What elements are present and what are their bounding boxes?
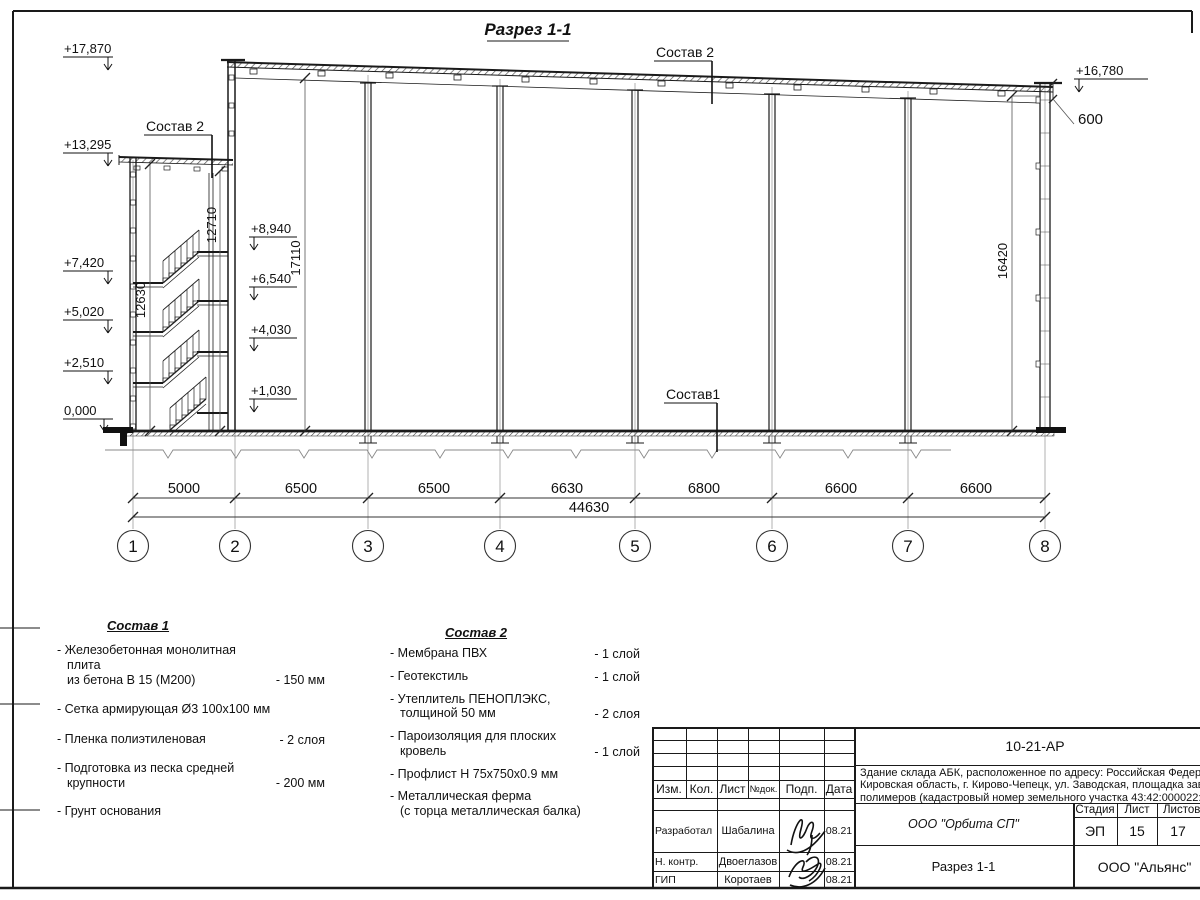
floor-slab <box>103 427 1066 458</box>
tb-sheet-value: 15 <box>1117 817 1157 845</box>
svg-text:+4,030: +4,030 <box>251 322 291 337</box>
note-item: - Утеплитель ПЕНОПЛЭКС, толщиной 50 мм- … <box>390 692 640 722</box>
note-item: - Геотекстиль- 1 слой <box>390 669 640 684</box>
svg-text:6500: 6500 <box>418 481 450 497</box>
tb-org: ООО "Орбита СП" <box>854 803 1073 845</box>
note-sostav1: Состав 1 - Железобетонная монолитная пли… <box>57 618 325 819</box>
drawing-sheet: { "drawing": { "title": "Разрез 1-1", "c… <box>0 0 1200 900</box>
tb-col-podp: Подп. <box>779 780 824 798</box>
tb-col-list: Лист <box>717 780 748 798</box>
axis-bubble: 8 <box>1030 531 1061 562</box>
svg-text:600: 600 <box>1078 111 1103 128</box>
note-item: - Сетка армирующая Ø3 100х100 мм <box>57 702 325 717</box>
svg-text:7: 7 <box>903 537 912 556</box>
tb-date: 08.21 <box>824 871 854 888</box>
svg-text:+17,870: +17,870 <box>64 41 111 56</box>
tb-doc-title: Разрез 1-1 <box>854 845 1073 888</box>
svg-text:6630: 6630 <box>551 481 583 497</box>
tb-col-izm: Изм. <box>652 780 686 798</box>
tb-name: Коротаев <box>717 871 779 888</box>
elevation-mark: +7,420 <box>63 255 113 284</box>
svg-text:6: 6 <box>767 537 776 556</box>
elevation-mark: +5,020 <box>63 304 113 333</box>
tb-description: Здание склада АБК, расположенное по адре… <box>860 767 1200 804</box>
svg-text:6500: 6500 <box>285 481 317 497</box>
svg-text:0,000: 0,000 <box>64 403 97 418</box>
tb-description-line: Кировская область, г. Кирово-Чепецк, ул.… <box>860 779 1200 791</box>
elevation-marks-left: +17,870 +13,295 +7,420 +5,020 +2,510 0,0… <box>63 41 113 431</box>
note-title: Состав 1 <box>107 618 169 633</box>
svg-text:1: 1 <box>128 537 137 556</box>
tb-sheet-label: Лист <box>1117 803 1157 817</box>
parapet-dim-600: 600 <box>1049 79 1103 128</box>
svg-text:+8,940: +8,940 <box>251 221 291 236</box>
note-item: - Профлист Н 75х750х0.9 мм <box>390 767 640 782</box>
note-item: - Грунт основания <box>57 804 325 819</box>
axis-bubble: 2 <box>220 531 251 562</box>
elevation-mark: +2,510 <box>63 355 113 384</box>
elevation-mark: +1,030 <box>249 383 297 412</box>
svg-text:6600: 6600 <box>825 481 857 497</box>
callout-sostav1: Состав1 <box>664 386 720 452</box>
svg-text:+16,780: +16,780 <box>1076 63 1123 78</box>
note-item: - Железобетонная монолитная плита из бет… <box>57 643 325 687</box>
note-sostav2: Состав 2 - Мембрана ПВХ- 1 слой - Геотек… <box>390 625 640 819</box>
view-title-text: Разрез 1-1 <box>484 20 571 39</box>
tb-name: Шабалина <box>717 810 779 852</box>
svg-text:2: 2 <box>230 537 239 556</box>
tb-name: Двоеглазов <box>717 852 779 871</box>
note-item: - Пароизоляция для плоских кровель- 1 сл… <box>390 729 640 759</box>
vertical-dim: 16420 <box>995 91 1040 436</box>
svg-text:5000: 5000 <box>168 481 200 497</box>
note-item: - Мембрана ПВХ- 1 слой <box>390 646 640 661</box>
note-item: - Пленка полиэтиленовая- 2 слоя <box>57 732 325 747</box>
grid-axis-lines <box>133 62 1045 529</box>
axis-bubble: 5 <box>620 531 651 562</box>
svg-text:Состав 2: Состав 2 <box>656 44 714 60</box>
elevation-mark-right: +16,780 <box>1074 63 1148 92</box>
svg-text:+6,540: +6,540 <box>251 271 291 286</box>
svg-text:+2,510: +2,510 <box>64 355 104 370</box>
view-title: Разрез 1-1 <box>484 20 571 41</box>
vertical-dim: 17110 <box>288 73 310 436</box>
hall-left-wall <box>228 60 235 431</box>
note-item: - Подготовка из песка средней крупности-… <box>57 761 325 791</box>
elevation-mark: +17,870 <box>63 41 113 70</box>
tb-stage-label: Стадия <box>1073 803 1117 817</box>
svg-text:+13,295: +13,295 <box>64 137 111 152</box>
svg-text:6600: 6600 <box>960 481 992 497</box>
tb-date: 08.21 <box>824 852 854 871</box>
tb-sheets-label: Листов <box>1157 803 1200 817</box>
axis-bubbles: 1 2 3 4 5 6 7 8 <box>118 531 1061 562</box>
axis-bubble: 1 <box>118 531 149 562</box>
svg-text:4: 4 <box>495 537 504 556</box>
svg-text:Состав 2: Состав 2 <box>146 118 204 134</box>
svg-text:+1,030: +1,030 <box>251 383 291 398</box>
tb-doc-code: 10-21-АР <box>854 727 1200 765</box>
tb-firm: ООО "Альянс" <box>1073 845 1200 888</box>
tb-stage-value: ЭП <box>1073 817 1117 845</box>
tb-sheets-value: 17 <box>1157 817 1199 845</box>
main-roof <box>221 60 1062 103</box>
tb-date: 08.21 <box>824 810 854 852</box>
svg-text:12630: 12630 <box>133 282 148 318</box>
svg-text:5: 5 <box>630 537 639 556</box>
ground-break-line <box>105 450 951 458</box>
tb-role: Н. контр. <box>655 852 717 871</box>
axis-bubble: 7 <box>893 531 924 562</box>
tb-description-line: Здание склада АБК, расположенное по адре… <box>860 767 1200 779</box>
svg-text:12710: 12710 <box>204 207 219 243</box>
svg-text:+5,020: +5,020 <box>64 304 104 319</box>
svg-text:6800: 6800 <box>688 481 720 497</box>
span-dimensions: 5000 6500 6500 6630 6800 6600 6600 44630 <box>128 481 1050 522</box>
tb-role: Разработал <box>655 810 717 852</box>
svg-text:44630: 44630 <box>569 500 609 516</box>
callout-sostav2-top: Состав 2 <box>654 44 714 104</box>
svg-text:8: 8 <box>1040 537 1049 556</box>
columns <box>359 83 917 443</box>
svg-text:17110: 17110 <box>288 240 303 275</box>
tb-col-ndok: №док. <box>748 780 779 798</box>
axis-bubble: 6 <box>757 531 788 562</box>
svg-text:+7,420: +7,420 <box>64 255 104 270</box>
tb-role: ГИП <box>655 871 717 888</box>
svg-text:3: 3 <box>363 537 372 556</box>
axis-bubble: 3 <box>353 531 384 562</box>
tb-col-data: Дата <box>824 780 854 798</box>
svg-text:16420: 16420 <box>995 243 1010 279</box>
vertical-dims: 12630 12710 17110 16420 <box>133 73 1040 436</box>
callout-sostav2-left: Состав 2 <box>144 118 212 178</box>
note-title: Состав 2 <box>445 625 507 640</box>
axis-bubble: 4 <box>485 531 516 562</box>
elevation-mark: +4,030 <box>249 322 297 351</box>
hall-right-wall <box>1036 83 1050 431</box>
elevation-mark: 0,000 <box>63 403 113 431</box>
svg-text:Состав1: Состав1 <box>666 386 720 402</box>
tb-col-kol: Кол. <box>686 780 717 798</box>
elevation-mark: +13,295 <box>63 137 113 166</box>
note-item: - Металлическая ферма (с торца металличе… <box>390 789 640 819</box>
